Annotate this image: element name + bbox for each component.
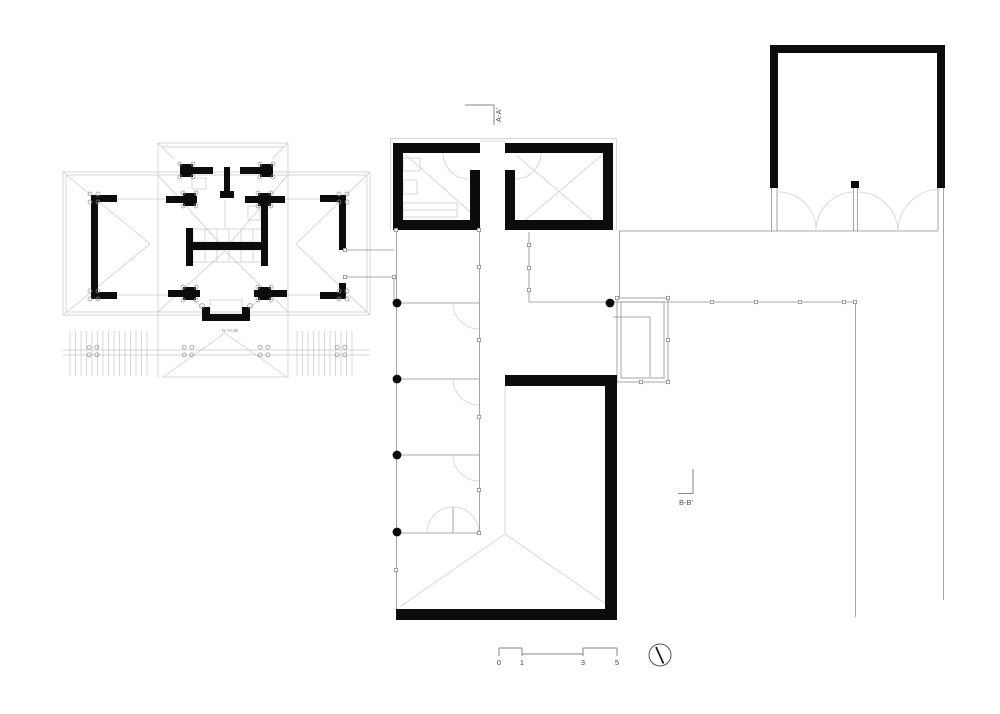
scale-tick-3: 3 <box>581 658 585 667</box>
section-b-label: B-B' <box>679 498 694 507</box>
section-a-label: A-A' <box>494 107 503 122</box>
scale-tick-0: 0 <box>497 658 501 667</box>
scale-tick-1: 1 <box>520 658 524 667</box>
scale-tick-5: 5 <box>615 658 619 667</box>
level-marker-label: N +0.38 <box>222 328 239 333</box>
floor-plan-sheet: A-A' B-B' N +0.38 0 1 3 5 <box>0 0 1000 714</box>
plan-linework <box>63 45 945 666</box>
floor-plan-canvas: A-A' B-B' N +0.38 0 1 3 5 <box>0 0 1000 714</box>
